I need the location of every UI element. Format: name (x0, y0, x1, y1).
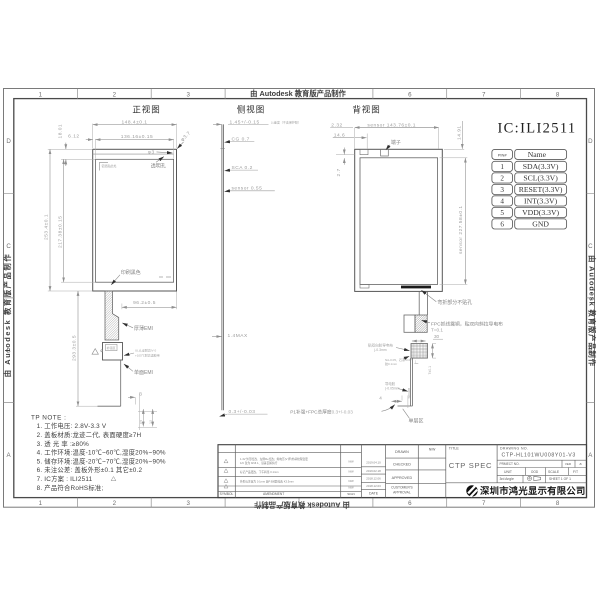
svg-text:PIN#: PIN# (498, 152, 508, 157)
svg-text:18.01: 18.01 (58, 124, 64, 139)
svg-text:7±0.1: 7±0.1 (428, 366, 432, 375)
svg-text:TP NOTE :: TP NOTE : (31, 414, 66, 421)
svg-text:标记产品更改，下午转签 0.1mm: 标记产品更改，下午转签 0.1mm (240, 470, 279, 474)
svg-text:3: 3 (186, 500, 190, 507)
svg-text:293.3±0.5: 293.3±0.5 (72, 335, 78, 361)
svg-text:3rd Angle: 3rd Angle (500, 477, 514, 481)
svg-text:D: D (6, 138, 11, 145)
svg-text:Name: Name (528, 150, 547, 159)
svg-text:外形标注改为 0.1mm 改P.9间距绘改 K3.5mm: 外形标注改为 0.1mm 改P.9间距绘改 K3.5mm (240, 479, 294, 483)
svg-text:6: 6 (408, 92, 412, 99)
svg-text:INT(3.3V): INT(3.3V) (524, 197, 558, 206)
svg-text:T=0.1: T=0.1 (431, 328, 443, 333)
svg-text:N/W: N/W (348, 470, 354, 474)
svg-text:3: 3 (139, 392, 142, 397)
svg-text:1/C 改为 9/16 1、误差瓦解执行: 1/C 改为 9/16 1、误差瓦解执行 (240, 461, 278, 465)
svg-text:背视图: 背视图 (352, 105, 380, 115)
svg-text:贴双向胶导电布: 贴双向胶导电布 (368, 342, 394, 347)
svg-text:96.2±0.5: 96.2±0.5 (133, 300, 156, 306)
svg-text:端子: 端子 (391, 139, 401, 146)
svg-text:侧视图: 侧视图 (237, 104, 265, 114)
svg-text:4: 4 (500, 198, 504, 206)
svg-text:0.5: 0.5 (139, 419, 143, 424)
svg-text:TITLE: TITLE (449, 447, 460, 451)
svg-text:AMENDMENT: AMENDMENT (263, 492, 284, 496)
svg-text:VDD(3.3V): VDD(3.3V) (522, 208, 559, 217)
svg-text:4: 4 (379, 396, 382, 401)
svg-text:3: 3 (186, 92, 190, 99)
svg-text:补强区: 补强区 (107, 345, 116, 350)
svg-text:由 Autodesk 教育版产品制作: 由 Autodesk 教育版产品制作 (588, 255, 597, 367)
svg-text:N/W: N/W (348, 486, 354, 490)
svg-text:1: 1 (39, 92, 43, 99)
svg-text:2018.12.06: 2018.12.06 (366, 477, 381, 481)
svg-text:VER: VER (565, 462, 572, 466)
svg-text:APPROVED: APPROVED (392, 476, 413, 480)
svg-text:F/T: F/T (573, 470, 578, 474)
svg-text:6. 未注公差: 盖板外形±0.1 其它±0.2: 6. 未注公差: 盖板外形±0.1 其它±0.2 (37, 465, 143, 474)
svg-text:GND: GND (532, 220, 549, 229)
svg-text:SYMBOL: SYMBOL (220, 492, 234, 496)
svg-text:6: 6 (500, 221, 504, 229)
svg-text:a: a (580, 462, 582, 466)
svg-text:2: 2 (113, 92, 117, 99)
svg-text:5: 5 (500, 209, 504, 217)
svg-text:+105℃耐高温胶带: +105℃耐高温胶带 (135, 353, 160, 358)
svg-text:RESET(3.3V): RESET(3.3V) (519, 185, 563, 194)
svg-text:1.4V 外形绘改、左侧R+绘改；端电压(V 押)外斜纹理变: 1.4V 外形绘改、左侧R+绘改；端电压(V 押)外斜纹理变更 (240, 457, 308, 461)
svg-text:2: 2 (113, 500, 117, 507)
svg-text:136.16±0.15: 136.16±0.15 (121, 134, 153, 140)
svg-text:6: 6 (408, 500, 412, 507)
svg-text:3.5: 3.5 (149, 419, 153, 424)
svg-text:3. 透 光 率 :≥80%: 3. 透 光 率 :≥80% (37, 439, 90, 448)
svg-text:DATE: DATE (369, 492, 379, 496)
svg-text:30: 30 (434, 334, 440, 339)
svg-text:N/W: N/W (348, 460, 354, 464)
svg-text:N/W: N/W (429, 448, 436, 452)
svg-text:由 Autodesk 教育版产品制作: 由 Autodesk 教育版产品制作 (253, 501, 349, 510)
svg-text:14.91: 14.91 (457, 125, 463, 140)
svg-text:单面EMI: 单面EMI (134, 369, 153, 376)
svg-text:厚薄EMI: 厚薄EMI (134, 325, 153, 332)
svg-text:2019.04.10: 2019.04.10 (366, 461, 381, 465)
svg-text:8. 产品符合RoHS标准;: 8. 产品符合RoHS标准; (37, 483, 104, 492)
svg-text:4. 工作环境:温度-10℃~60℃,湿度20%~90%: 4. 工作环境:温度-10℃~60℃,湿度20%~90% (37, 448, 166, 457)
svg-text:UL认证耐高/V 0: UL认证耐高/V 0 (135, 347, 157, 352)
svg-text:单层区: 单层区 (409, 418, 424, 425)
svg-text:φ3: φ3 (148, 150, 155, 156)
svg-text:2.7: 2.7 (336, 168, 342, 176)
svg-text:CTP-HL101WU008Y01-V3: CTP-HL101WU008Y01-V3 (502, 453, 576, 459)
svg-text:正视图: 正视图 (132, 104, 160, 114)
svg-text:SIGN: SIGN (347, 492, 355, 496)
svg-text:1: 1 (500, 163, 504, 171)
svg-text:7: 7 (482, 92, 486, 99)
svg-text:UNIT: UNIT (504, 470, 512, 474)
svg-text:铝箔贴此处: 铝箔贴此处 (102, 163, 117, 168)
svg-text:透明孔: 透明孔 (151, 162, 166, 169)
svg-text:导电胶: 导电胶 (385, 381, 396, 386)
svg-text:(-0.05mm: (-0.05mm (385, 387, 400, 391)
svg-text:5. 储存环境:温度-20℃~70℃,湿度20%~90%: 5. 储存环境:温度-20℃~70℃,湿度20%~90% (37, 456, 166, 465)
svg-text:P1补强+FPC总厚度0.3+/-0.03: P1补强+FPC总厚度0.3+/-0.03 (290, 409, 353, 416)
svg-text:SCALE: SCALE (548, 470, 560, 474)
svg-text:8: 8 (556, 92, 560, 99)
svg-text:C: C (588, 243, 593, 250)
svg-text:1.4MAX: 1.4MAX (228, 333, 248, 339)
svg-text:1.45+/-0.15: 1.45+/-0.15 (230, 119, 260, 125)
svg-text:2. 盖板材质:龙迹二代, 表面硬度≥7H: 2. 盖板材质:龙迹二代, 表面硬度≥7H (37, 430, 142, 439)
svg-text:D: D (588, 138, 593, 145)
svg-text:SCL(3.3V): SCL(3.3V) (523, 174, 558, 183)
svg-text:DRAWING NO.: DRAWING NO. (500, 447, 528, 451)
svg-text:CHECKED: CHECKED (393, 463, 411, 467)
svg-text:C: C (6, 243, 11, 250)
svg-text:PRMECT NO.: PRMECT NO. (500, 462, 520, 466)
svg-text:APPROVAL: APPROVAL (393, 490, 411, 494)
svg-text:SDA(3.3V): SDA(3.3V) (523, 162, 559, 171)
svg-text:由 Autodesk 教育版产品制作: 由 Autodesk 教育版产品制作 (250, 89, 346, 98)
svg-text:(-0.3mm: (-0.3mm (374, 348, 387, 352)
svg-text:3: 3 (500, 186, 504, 194)
svg-text:DRAWN: DRAWN (395, 450, 409, 454)
svg-text:217.38±0.15: 217.38±0.15 (58, 216, 64, 248)
svg-text:2019.02.18: 2019.02.18 (366, 469, 381, 473)
svg-text:7. IC方案 : ILI2511: 7. IC方案 : ILI2511 (37, 474, 93, 483)
svg-text:公差度（不含保护膜）: 公差度（不含保护膜） (271, 119, 301, 124)
svg-text:SHEET 1 OF 1: SHEET 1 OF 1 (549, 477, 571, 481)
svg-text:深圳市鸿光显示有限公司: 深圳市鸿光显示有限公司 (480, 485, 586, 496)
svg-text:8: 8 (556, 500, 560, 507)
svg-text:印刷黑色: 印刷黑色 (121, 269, 141, 276)
svg-text:1. 工作电压: 2.8V-3.3 V: 1. 工作电压: 2.8V-3.3 V (37, 421, 107, 430)
svg-text:弯折部分不贴孔: 弯折部分不贴孔 (437, 299, 472, 306)
svg-text:FPC抓线露铜，贴双向斜拉导电布: FPC抓线露铜，贴双向斜拉导电布 (431, 320, 503, 327)
svg-text:CUSTOMER'S: CUSTOMER'S (391, 485, 413, 489)
svg-text:1: 1 (39, 500, 43, 507)
svg-text:IC:ILI2511: IC:ILI2511 (497, 121, 576, 137)
svg-text:CTP SPEC: CTP SPEC (449, 461, 492, 470)
svg-text:胶0.1mm: 胶0.1mm (385, 361, 398, 366)
svg-text:N/W: N/W (348, 479, 354, 483)
svg-text:由 Autodesk 教育版产品制作: 由 Autodesk 教育版产品制作 (3, 253, 12, 377)
svg-text:OOD: OOD (531, 470, 539, 474)
svg-text:148.4±0.1: 148.4±0.1 (121, 119, 147, 125)
svg-text:253.4±0.1: 253.4±0.1 (44, 214, 50, 240)
svg-text:2018.12.03: 2018.12.03 (366, 484, 381, 488)
svg-text:2: 2 (500, 175, 504, 183)
svg-text:7: 7 (482, 500, 486, 507)
svg-text:6.12: 6.12 (68, 133, 79, 139)
svg-text:sensor 227.58±0.1: sensor 227.58±0.1 (458, 205, 464, 254)
